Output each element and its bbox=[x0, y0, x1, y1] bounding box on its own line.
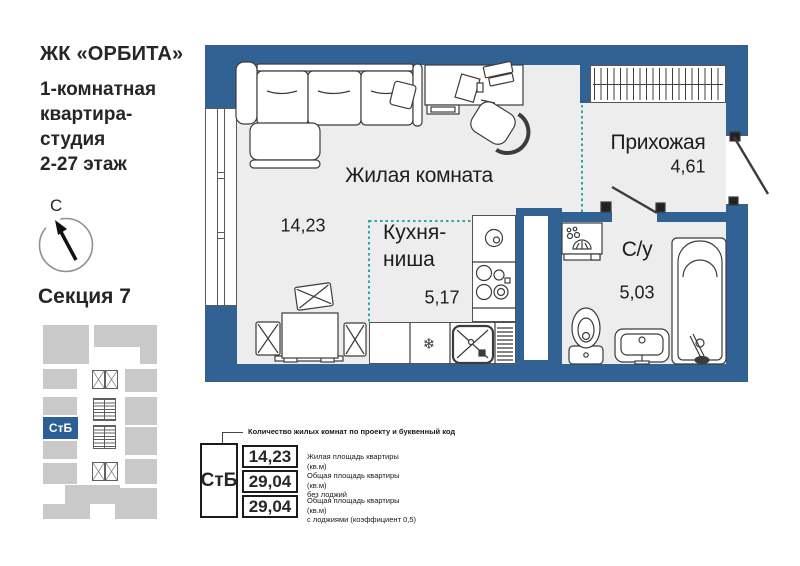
minimap-block bbox=[125, 427, 157, 455]
elevator-icon bbox=[105, 370, 118, 389]
legend-label-living: Жилая площадь квартиры (кв.м) bbox=[307, 452, 417, 471]
fridge-icon: ❄ bbox=[410, 322, 450, 364]
room-area-living: 14,23 bbox=[280, 216, 325, 237]
minimap-block bbox=[43, 397, 77, 415]
bathtub-icon bbox=[672, 238, 726, 364]
sink-icon bbox=[453, 326, 493, 363]
minimap-block bbox=[125, 369, 157, 392]
dining-table-icon bbox=[275, 313, 343, 362]
room-area-bathroom: 5,03 bbox=[619, 283, 654, 304]
minimap-block bbox=[140, 347, 157, 364]
minimap-block bbox=[43, 441, 77, 459]
dish-rack-icon bbox=[495, 322, 513, 364]
minimap-block bbox=[94, 325, 157, 347]
complex-name: ЖК «ОРБИТА» bbox=[40, 43, 183, 66]
stairs-icon bbox=[104, 425, 116, 449]
room-label-bathroom: С/у bbox=[622, 238, 653, 262]
chair-icon bbox=[344, 323, 366, 356]
legend-label-total-loggia: Общая площадь квартиры (кв.м) с лоджиями… bbox=[307, 496, 417, 525]
floor-plan: ❄ bbox=[205, 45, 748, 382]
chair-icon bbox=[256, 322, 280, 355]
minimap-block bbox=[43, 325, 89, 364]
stairs-icon bbox=[104, 398, 116, 421]
minimap-block bbox=[125, 397, 157, 425]
stove-icon bbox=[472, 262, 516, 308]
compass-icon bbox=[36, 214, 98, 278]
minimap-block bbox=[115, 488, 157, 519]
room-area-hallway: 4,61 bbox=[670, 157, 705, 178]
legend-value-total-loggia: 29,04 bbox=[242, 495, 298, 518]
room-label-hallway: Прихожая bbox=[611, 131, 706, 155]
minimap-block bbox=[43, 504, 90, 519]
legend-value-living: 14,23 bbox=[242, 445, 298, 468]
legend-unit-code: СтБ bbox=[200, 443, 238, 518]
minimap-block bbox=[43, 463, 77, 484]
desk-icon bbox=[425, 61, 523, 114]
minimap-block bbox=[125, 459, 157, 484]
bathroom-door-icon bbox=[601, 187, 665, 213]
chair-icon bbox=[295, 283, 334, 311]
room-label-kitchen: Кухня-ниша bbox=[383, 219, 471, 273]
round-sink-icon bbox=[486, 230, 503, 247]
furniture-layer: ❄ bbox=[205, 45, 785, 382]
elevator-icon bbox=[92, 462, 105, 481]
legend-callout: Количество жилых комнат по проекту и бук… bbox=[248, 427, 455, 436]
flat-plan-page: ЖК «ОРБИТА» 1-комнатная квартира- студия… bbox=[0, 0, 800, 566]
minimap-block bbox=[65, 485, 120, 504]
room-label-living: Жилая комната bbox=[345, 164, 493, 188]
section-minimap: СтБ bbox=[40, 322, 160, 522]
room-area-kitchen: 5,17 bbox=[424, 288, 459, 309]
apartment-type: 1-комнатная квартира- студия 2-27 этаж bbox=[40, 77, 156, 177]
section-title: Секция 7 bbox=[38, 285, 131, 309]
svg-text:❄: ❄ bbox=[423, 335, 436, 353]
compass-north-label: С bbox=[50, 196, 62, 216]
legend-callout-line bbox=[222, 432, 223, 443]
washing-machine-icon bbox=[562, 223, 602, 260]
legend-callout-line bbox=[222, 432, 243, 433]
entrance-door-icon bbox=[729, 132, 768, 205]
minimap-unit-stb: СтБ bbox=[43, 417, 78, 439]
legend-value-total: 29,04 bbox=[242, 470, 298, 493]
washbasin-icon bbox=[615, 329, 669, 364]
toilet-icon bbox=[569, 308, 603, 364]
elevator-icon bbox=[92, 370, 105, 389]
minimap-block bbox=[43, 369, 77, 389]
elevator-icon bbox=[105, 462, 118, 481]
sofa-icon bbox=[236, 62, 422, 168]
